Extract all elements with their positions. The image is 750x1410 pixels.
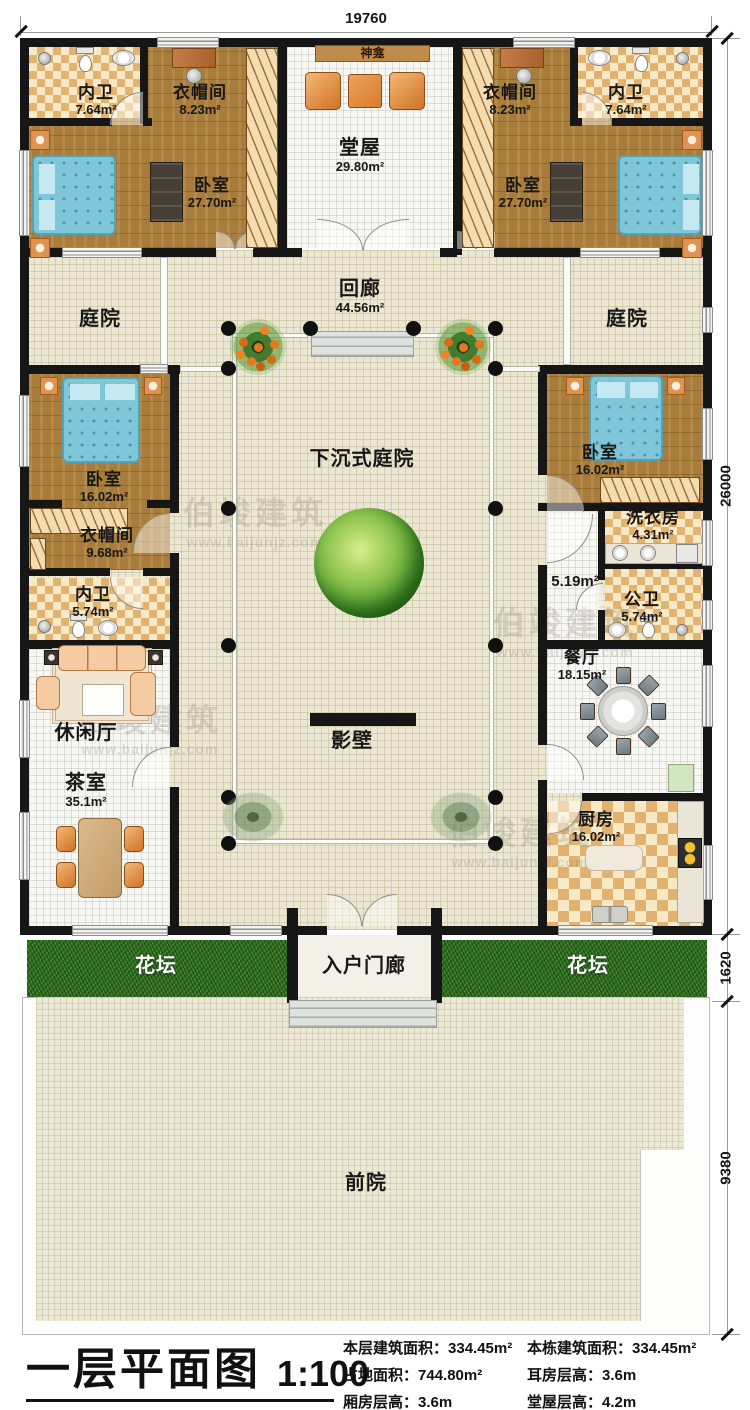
stat-wing-room-height: 厢房层高：3.6m <box>343 1391 523 1410</box>
wall-kitchen-top <box>582 793 712 801</box>
title-block: 一层平面图 1:100 <box>26 1346 369 1394</box>
window <box>19 700 30 758</box>
dimension-right-frontyard-label: 9380 <box>718 1151 735 1184</box>
sink <box>588 50 611 66</box>
wall-bathL-top-b <box>143 568 177 576</box>
toilet <box>632 47 650 54</box>
wall-left-col-a <box>170 373 179 513</box>
room-label-lounge: 休闲厅 <box>55 722 118 745</box>
nightstand <box>667 377 685 395</box>
toilet <box>79 55 92 72</box>
bed <box>618 155 702 235</box>
tv-cabinet <box>150 162 183 222</box>
wall-bath-tr-bottom <box>612 118 707 126</box>
window <box>702 307 713 333</box>
wall-band1-b <box>253 248 302 257</box>
sink <box>98 620 118 636</box>
nightstand <box>30 130 50 150</box>
room-label-bedroom-ml: 卧室 16.02m² <box>80 470 128 504</box>
wall-right-col-c <box>538 780 547 926</box>
chaise <box>130 672 156 716</box>
side-table <box>148 650 163 665</box>
window <box>230 925 282 936</box>
front-yard-floor <box>36 997 684 1321</box>
kitchen-sink <box>592 906 628 923</box>
room-label-flowerbed-left: 花坛 <box>135 955 177 978</box>
stat-hall-height: 堂屋层高：4.2m <box>527 1391 712 1410</box>
room-label-bath-left: 内卫 5.74m² <box>72 585 113 619</box>
window <box>702 150 713 236</box>
window <box>702 665 713 727</box>
tea-chair <box>124 862 144 888</box>
floor-lamp <box>676 624 688 636</box>
floor-plan: 伯竣建筑 www.baijunjz.com 伯竣建筑 www.baijunjz.… <box>0 0 750 1410</box>
dimension-top-label: 19760 <box>345 10 387 27</box>
room-label-bedroom-tl: 卧室 27.70m² <box>188 176 236 210</box>
room-label-front-yard: 前院 <box>345 1172 387 1195</box>
wall-bath-tl-bottom <box>27 118 112 126</box>
wall-closetL-top-a <box>20 500 62 508</box>
dimension-right-flowerbed-label: 1620 <box>718 951 735 984</box>
desk-chair <box>516 68 532 84</box>
porch-post-right <box>431 908 442 1003</box>
porch-steps <box>289 1000 437 1028</box>
tv-cabinet <box>550 162 583 222</box>
nightstand <box>30 238 50 258</box>
window <box>72 925 168 936</box>
window <box>580 247 660 258</box>
column <box>221 638 236 653</box>
fridge <box>668 764 694 792</box>
tea-chair <box>124 826 144 852</box>
closet-desk <box>500 48 544 68</box>
window <box>157 37 219 48</box>
tree <box>314 508 424 618</box>
wall-left-col-b <box>170 553 179 747</box>
potted-plant <box>230 319 286 375</box>
toilet <box>76 47 94 54</box>
courtyard-rail-right <box>489 335 494 843</box>
window <box>140 364 168 374</box>
wall-stub <box>570 118 582 126</box>
armchair <box>36 676 60 710</box>
tea-chair <box>56 826 76 852</box>
shower-head <box>676 52 689 65</box>
room-label-kitchen: 厨房 16.02m² <box>572 810 620 844</box>
room-label-bath-tl: 内卫 7.64m² <box>75 83 116 117</box>
wall-band1-c <box>440 248 457 257</box>
wall-stub <box>538 793 547 801</box>
window <box>62 247 142 258</box>
tea-table <box>78 818 122 898</box>
side-table <box>44 650 59 665</box>
courtyard-steps <box>311 331 414 357</box>
wall-closetL-top-b <box>147 500 177 508</box>
toilet <box>635 55 648 72</box>
room-label-courtyard-right: 庭院 <box>606 308 648 331</box>
stat-building-area: 本栋建筑面积：334.45m² <box>527 1337 712 1358</box>
sink <box>112 50 135 66</box>
desk-chair <box>186 68 202 84</box>
room-label-dining: 餐厅 18.15m² <box>558 648 606 682</box>
nightstand <box>682 130 702 150</box>
hall-chair <box>389 72 425 110</box>
room-label-public-bath: 公卫 5.74m² <box>621 590 662 624</box>
coffee-table <box>82 684 124 716</box>
sink <box>612 545 628 561</box>
tea-chair <box>56 862 76 888</box>
column <box>488 638 503 653</box>
title-underline <box>26 1399 334 1402</box>
wall-bath-tr <box>570 45 578 124</box>
room-label-flowerbed-right: 花坛 <box>567 955 609 978</box>
room-label-hall: 堂屋 29.80m² <box>336 137 384 175</box>
kitchen-island <box>585 845 643 871</box>
wall-hallway-right-a <box>598 503 605 580</box>
column <box>488 501 503 516</box>
plan-title: 一层平面图 <box>26 1346 261 1394</box>
shower-head <box>38 52 51 65</box>
room-label-hallway-area: 5.19m² <box>551 573 599 590</box>
screen-wall-bar <box>310 713 416 726</box>
wall-hall-left <box>278 38 287 255</box>
room-label-entry-porch: 入户门廊 <box>322 955 406 978</box>
room-label-closet-tr: 衣帽间 8.23m² <box>483 83 537 117</box>
stat-land-area: 占地面积：744.80m² <box>343 1364 523 1385</box>
closet-desk <box>172 48 216 68</box>
wall-courtyardR-bottom <box>538 365 712 374</box>
pine-plant <box>430 792 492 842</box>
nightstand <box>682 238 702 258</box>
wall-hallway-right-b <box>598 610 605 640</box>
stats-block: 本层建筑面积：334.45m² 本栋建筑面积：334.45m² 占地面积：744… <box>343 1337 712 1410</box>
wardrobe <box>600 477 700 503</box>
column <box>221 501 236 516</box>
watermark: 伯竣建筑 www.baijunjz.com <box>183 488 327 550</box>
window <box>558 925 653 936</box>
wall-left-col-c <box>170 787 179 926</box>
walkway-rail-left <box>180 366 224 372</box>
column <box>488 836 503 851</box>
dining-table <box>598 686 648 736</box>
room-label-courtyard-left: 庭院 <box>79 308 121 331</box>
wardrobe <box>462 48 494 248</box>
room-label-sunken-courtyard: 下沉式庭院 <box>310 448 415 471</box>
dimension-right-main-label: 26000 <box>718 465 735 507</box>
wall-right-col-a <box>538 373 547 475</box>
potted-plant <box>435 319 491 375</box>
room-label-bedroom-tr: 卧室 27.70m² <box>499 176 547 210</box>
nightstand <box>144 377 162 395</box>
window <box>702 600 713 630</box>
dimension-line-right <box>727 38 728 1335</box>
window <box>19 150 30 236</box>
window <box>513 37 575 48</box>
nightstand <box>40 377 58 395</box>
column <box>406 321 421 336</box>
courtyardR-partition <box>563 257 571 365</box>
window <box>702 408 713 460</box>
bed <box>62 377 140 463</box>
wall-right-col-b <box>538 565 547 745</box>
sofa <box>58 645 146 671</box>
wall-hall-right <box>453 38 462 255</box>
front-yard-path <box>640 1150 685 1321</box>
toilet <box>72 621 85 638</box>
shrine-cabinet: 神龛 <box>315 45 430 62</box>
floor-lamp <box>38 620 51 633</box>
dining-chair <box>580 703 595 720</box>
room-label-closet-tl: 衣帽间 8.23m² <box>173 83 227 117</box>
dining-chair <box>616 667 631 684</box>
column <box>221 836 236 851</box>
stat-floor-area: 本层建筑面积：334.45m² <box>343 1337 523 1358</box>
dining-chair <box>616 738 631 755</box>
walkway-rail-right <box>500 366 540 372</box>
sink <box>640 545 656 561</box>
courtyardL-partition <box>160 257 168 365</box>
window <box>19 812 30 880</box>
room-label-closet-left: 衣帽间 9.68m² <box>80 526 134 560</box>
hall-chair <box>305 72 341 110</box>
room-label-bedroom-mr: 卧室 16.02m² <box>576 443 624 477</box>
wardrobe <box>246 48 278 248</box>
room-label-corridor: 回廊 44.56m² <box>336 278 384 316</box>
hall-table <box>348 74 382 108</box>
pine-plant <box>222 792 284 842</box>
window <box>702 520 713 566</box>
stat-ear-room-height: 耳房层高：3.6m <box>527 1364 712 1385</box>
room-label-laundry: 洗衣房 4.31m² <box>626 508 680 542</box>
courtyard-rail-left <box>232 335 237 843</box>
wall-stub <box>143 118 152 126</box>
window <box>19 395 30 467</box>
nightstand <box>566 377 584 395</box>
stove <box>678 838 702 868</box>
porch-post-left <box>287 908 298 1003</box>
room-label-tea-room: 茶室 35.1m² <box>65 772 107 810</box>
wardrobe <box>30 538 46 570</box>
column <box>488 790 503 805</box>
column <box>303 321 318 336</box>
room-label-bath-tr: 内卫 7.64m² <box>605 83 646 117</box>
room-label-screen-wall: 影壁 <box>331 730 373 753</box>
bed <box>32 155 116 235</box>
dimension-line-top <box>20 32 712 33</box>
wall-outer-bottom-right <box>397 926 712 935</box>
dining-chair <box>651 703 666 720</box>
washing-machine <box>676 544 698 563</box>
